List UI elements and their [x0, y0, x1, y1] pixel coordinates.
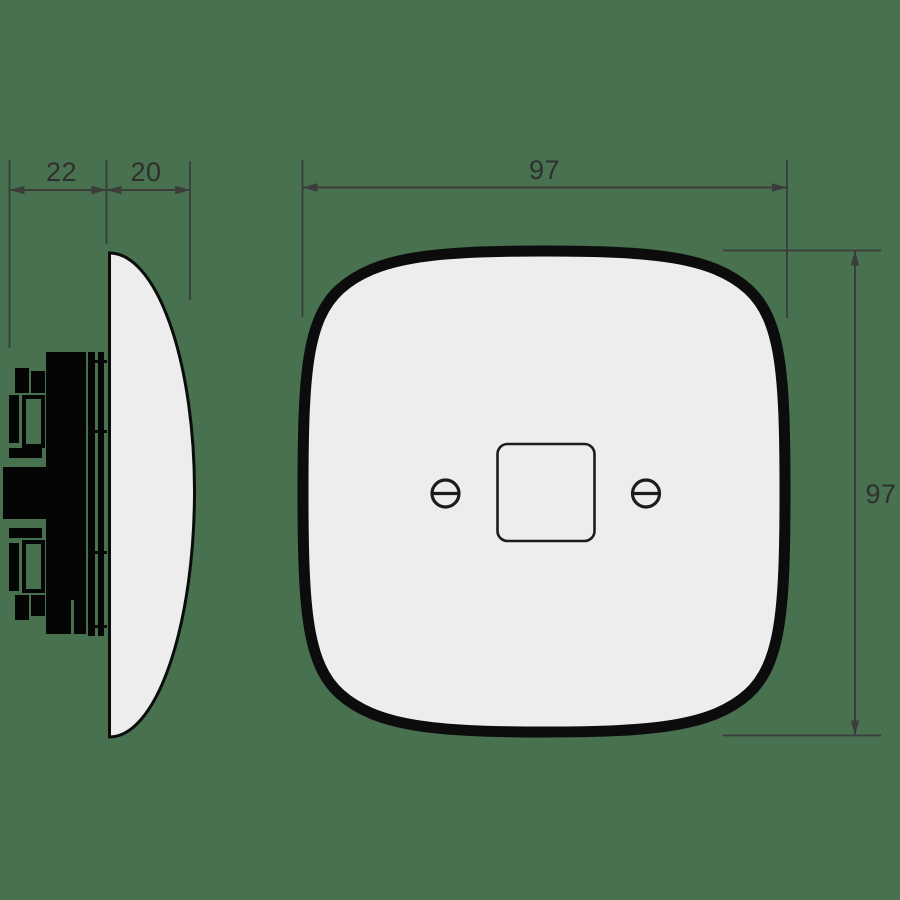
dim-label-front-width: 97 — [529, 155, 560, 185]
dim-label-front-depth: 20 — [130, 157, 161, 187]
mechanism-top-lug-a — [15, 368, 29, 393]
mechanism-bottom-lug-a — [15, 595, 29, 620]
mechanism-tick-3 — [95, 551, 107, 554]
mechanism-bottom-notch — [71, 600, 74, 634]
dim-label-front-height: 97 — [865, 479, 896, 509]
mechanism-bottom-cross-bar — [9, 528, 42, 538]
mechanism-tick-4 — [95, 625, 107, 628]
dim-label-rear-depth: 22 — [46, 157, 77, 187]
mechanism-bottom-claw-bar — [9, 543, 19, 591]
mechanism-top-cross-bar — [9, 448, 42, 458]
mechanism-top-lug-b — [31, 371, 45, 393]
front-view — [303, 251, 785, 732]
front-plate-outline — [303, 251, 785, 732]
mechanism-bottom-lug-b — [31, 595, 45, 616]
mechanism-center-block — [3, 467, 46, 519]
technical-drawing-canvas: 22 20 97 97 — [0, 0, 900, 900]
mechanism-frame-strip-outer — [88, 352, 95, 636]
mechanism-tick-1 — [95, 360, 107, 363]
mechanism-main-column — [46, 352, 86, 634]
screw-right — [632, 480, 660, 507]
screw-left — [432, 480, 460, 507]
mechanism-top-claw-bar — [9, 395, 19, 443]
mechanism-tick-2 — [95, 430, 107, 433]
mechanism-frame-strip-inner — [98, 352, 104, 636]
